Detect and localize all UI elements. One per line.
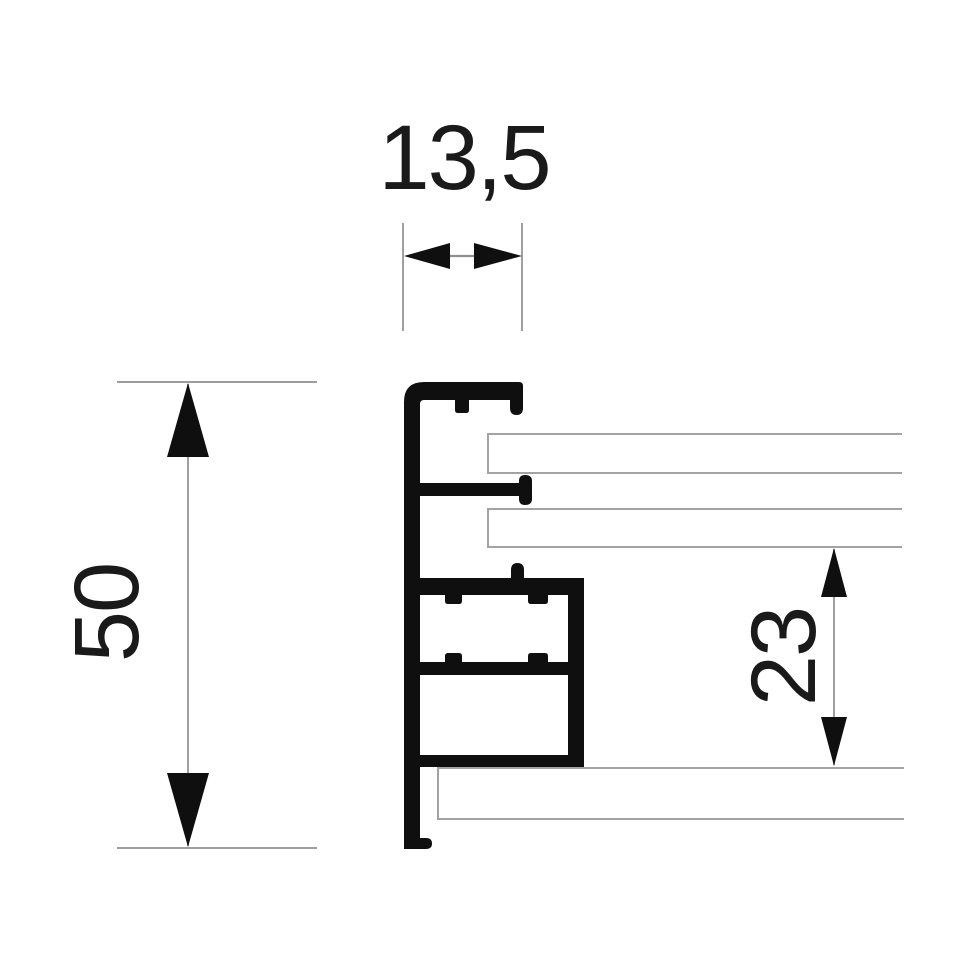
arrowhead-left-icon [404,243,450,269]
panel-top [488,434,902,473]
dimension-label-width: 13,5 [378,107,549,209]
arrowhead-down-icon [167,773,209,847]
dimension-width: 13,5 [378,107,549,331]
arrowhead-up-icon [167,383,209,457]
dimension-offset: 23 [733,548,847,766]
drawing-page: 13,5 50 23 [0,0,962,962]
dimension-label-height: 50 [56,564,158,662]
arrowhead-down-icon [821,717,847,766]
arrowhead-right-icon [474,243,522,269]
profile-technical-drawing: 13,5 50 23 [0,0,962,962]
panel-bottom [438,768,904,819]
panel-middle [488,509,902,547]
arrowhead-up-icon [821,548,847,597]
dimension-label-offset: 23 [733,608,835,706]
dimension-height: 50 [56,382,317,848]
